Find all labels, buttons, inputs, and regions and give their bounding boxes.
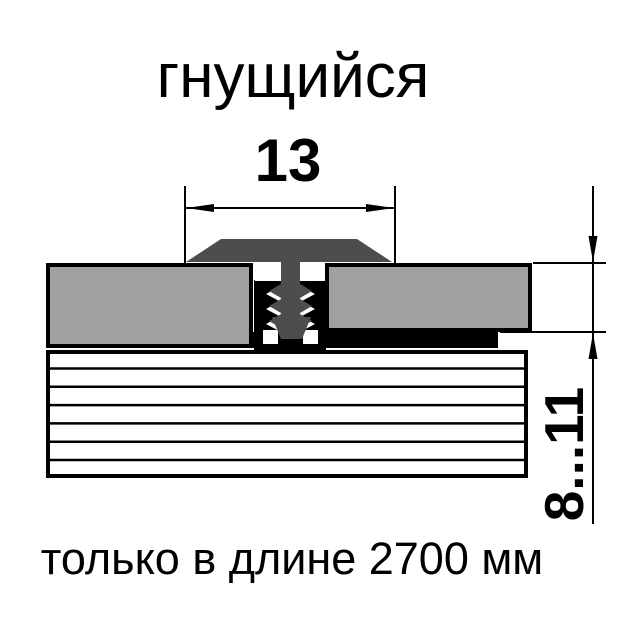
arrow-left-icon <box>186 204 214 212</box>
underlay-board <box>48 352 526 476</box>
arrow-up-icon <box>589 333 598 359</box>
gap-top-left <box>255 263 281 281</box>
gap-top-right <box>300 263 325 281</box>
technical-diagram: 13 8...11 гнущийся только в длине 2700 м… <box>0 0 638 639</box>
arrow-down-icon <box>589 236 598 262</box>
diagram-canvas: 13 8...11 гнущийся только в длине 2700 м… <box>0 0 638 639</box>
underlay-outline <box>48 352 526 476</box>
left-floor-panel <box>48 265 251 346</box>
width-dimension-label: 13 <box>255 127 322 194</box>
length-note: только в длине 2700 мм <box>41 533 544 584</box>
gap-foot-right <box>303 330 318 344</box>
arrow-right-icon <box>366 204 394 212</box>
gap-foot-left <box>263 330 278 344</box>
thickness-dimension-label: 8...11 <box>533 387 595 522</box>
product-title: гнущийся <box>157 42 430 111</box>
right-floor-panel <box>327 265 530 330</box>
